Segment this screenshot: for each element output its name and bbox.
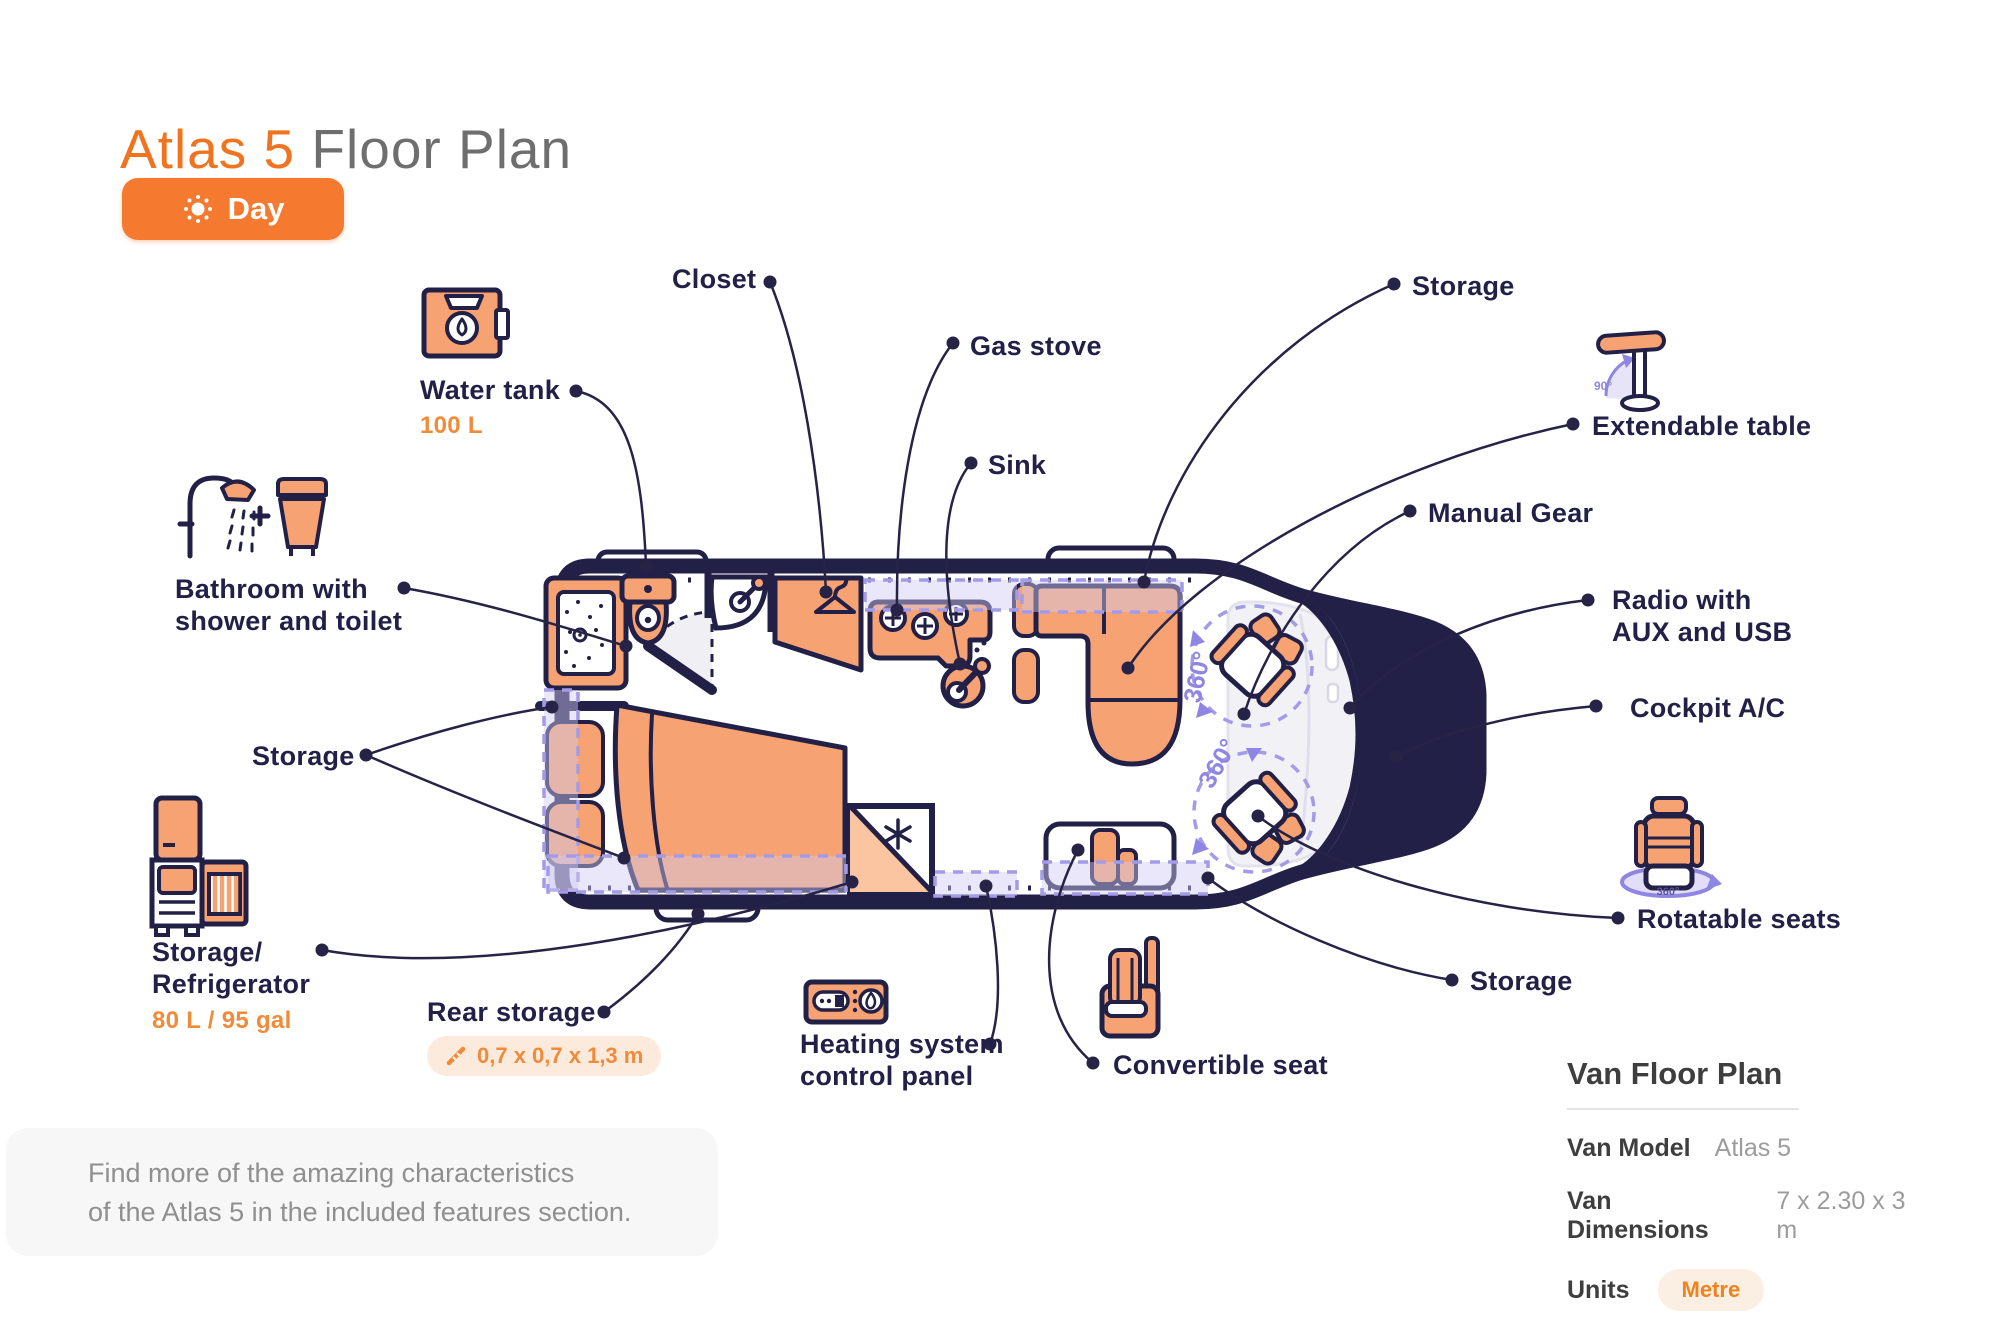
kitchen-sink bbox=[943, 666, 983, 706]
line-water-tank bbox=[576, 391, 646, 566]
features-note: Find more of the amazing characteristics… bbox=[6, 1128, 718, 1256]
callout-storage-left: Storage bbox=[252, 740, 355, 772]
shower-icon bbox=[180, 478, 254, 556]
line-sink bbox=[946, 463, 971, 664]
units-badge[interactable]: Metre bbox=[1658, 1269, 1765, 1311]
seat-shape bbox=[1208, 603, 1315, 709]
page-title: Atlas 5 Floor Plan bbox=[120, 117, 572, 181]
callout-sink: Sink bbox=[988, 449, 1046, 481]
convertible-seat-label: Convertible seat bbox=[1113, 1050, 1328, 1080]
callout-storage-right: Storage bbox=[1470, 965, 1573, 997]
fridge-diagonal bbox=[850, 806, 932, 892]
line-manual-gear bbox=[1244, 511, 1410, 714]
line-bathroom bbox=[404, 588, 626, 646]
rotation-circle bbox=[1194, 752, 1314, 872]
bench-frame bbox=[1046, 824, 1174, 888]
toilet-seat bbox=[637, 606, 659, 630]
van-dimensions-row: Van Dimensions 7 x 2.30 x 3 m bbox=[1567, 1187, 1927, 1245]
bed-mattress bbox=[615, 705, 845, 890]
fridge-area bbox=[850, 806, 932, 892]
overhead-storage bbox=[548, 856, 846, 892]
cockpit-ac-label: Cockpit A/C bbox=[1630, 693, 1785, 723]
line-radio bbox=[1350, 600, 1588, 708]
bench-cushion bbox=[1118, 850, 1136, 884]
closet-area bbox=[775, 578, 861, 670]
rotatable-seats-label: Rotatable seats bbox=[1637, 904, 1841, 934]
seat-360-label: 360° bbox=[1657, 886, 1680, 898]
sink-label: Sink bbox=[988, 450, 1046, 480]
counter-dot bbox=[982, 641, 987, 646]
day-mode-button[interactable]: Day bbox=[122, 178, 344, 240]
roof-window bbox=[1048, 548, 1174, 570]
overhead-storage-strips bbox=[544, 580, 1208, 896]
line-storage-right bbox=[1208, 878, 1452, 980]
counter-dot bbox=[975, 648, 980, 653]
heating-panel-icon bbox=[806, 982, 886, 1022]
a-pillar-top bbox=[1312, 600, 1360, 702]
rear-storage-label: Rear storage bbox=[427, 997, 596, 1027]
water-tank-label: Water tank bbox=[420, 375, 560, 405]
closet-panel bbox=[775, 578, 861, 670]
kitchen-faucet bbox=[959, 668, 980, 690]
line-heating bbox=[986, 886, 998, 1044]
van-dimensions-value: 7 x 2.30 x 3 m bbox=[1776, 1187, 1927, 1245]
table-angle-label: 90° bbox=[1594, 379, 1612, 393]
page-title-model: Atlas 5 bbox=[120, 118, 295, 180]
rotation-arrow bbox=[1190, 630, 1205, 647]
bathroom-door bbox=[648, 646, 712, 690]
refrigerator-capacity: 80 L / 95 gal bbox=[152, 1007, 310, 1036]
van-dimensions-label: Van Dimensions bbox=[1567, 1187, 1752, 1245]
rotatable-seat-front: 360° bbox=[1178, 603, 1314, 726]
atlas5-floorplan-page: 360° 360° bbox=[0, 0, 2000, 1334]
units-row: Units Metre bbox=[1567, 1269, 1927, 1311]
dinette-sofa bbox=[1014, 584, 1180, 764]
page-title-rest: Floor Plan bbox=[295, 118, 572, 180]
shower-floor bbox=[558, 592, 614, 674]
rotation-arrow bbox=[1192, 838, 1209, 855]
convertible-bench bbox=[1046, 824, 1174, 888]
line-storage-refrigerator bbox=[322, 882, 852, 958]
callout-radio: Radio with AUX and USB bbox=[1612, 584, 1792, 649]
van-model-value: Atlas 5 bbox=[1715, 1134, 1791, 1163]
sofa-seat bbox=[1036, 586, 1180, 764]
units-label: Units bbox=[1567, 1276, 1630, 1305]
plus-icon bbox=[252, 508, 268, 524]
manual-gear-label: Manual Gear bbox=[1428, 498, 1593, 528]
van-nose bbox=[1302, 596, 1479, 872]
ruler-icon bbox=[445, 1045, 467, 1067]
shower-drain-dot bbox=[578, 633, 582, 637]
van-info-panel: Van Floor Plan Van Model Atlas 5 Van Dim… bbox=[1567, 1056, 1927, 1311]
van-model-label: Van Model bbox=[1567, 1134, 1691, 1163]
toilet-tank bbox=[622, 576, 674, 602]
callout-extendable-table: Extendable table bbox=[1592, 410, 1811, 442]
day-mode-label: Day bbox=[228, 191, 285, 227]
snowflake-icon bbox=[886, 820, 910, 848]
kitchen-faucet-knob bbox=[975, 659, 989, 673]
refrigerator-icon bbox=[152, 798, 246, 935]
shower-drain bbox=[574, 629, 586, 641]
bathroom-faucet bbox=[740, 585, 757, 602]
line-rear-storage bbox=[604, 914, 698, 1012]
pillow bbox=[547, 802, 603, 866]
storage-refrigerator-line2: Refrigerator bbox=[152, 968, 310, 1000]
water-tank-capacity: 100 L bbox=[420, 412, 560, 441]
overhead-storage bbox=[1022, 580, 1182, 612]
line-cockpit-ac bbox=[1396, 706, 1596, 757]
van-floor-plan: 360° 360° bbox=[540, 548, 1479, 920]
info-panel-title: Van Floor Plan bbox=[1567, 1056, 1927, 1092]
rotation-arrow bbox=[1246, 748, 1262, 762]
rear-storage-dimensions: 0,7 x 0,7 x 1,3 m bbox=[477, 1043, 643, 1069]
van-model-row: Van Model Atlas 5 bbox=[1567, 1134, 1927, 1163]
callout-rear-storage: Rear storage bbox=[427, 996, 596, 1028]
callout-rotatable-seats: Rotatable seats bbox=[1637, 903, 1841, 935]
line-convertible-seat bbox=[1049, 850, 1093, 1063]
door-swing-arc bbox=[648, 612, 712, 690]
callout-water-tank: Water tank 100 L bbox=[420, 374, 560, 441]
rotatable-seat-icon: 360° bbox=[1622, 798, 1722, 898]
sofa-back-cushion bbox=[1014, 650, 1038, 702]
rotation-circle bbox=[1192, 606, 1312, 726]
water-tank-icon bbox=[424, 290, 508, 356]
a-pillar-bottom bbox=[1312, 766, 1360, 868]
fridge-door bbox=[850, 806, 932, 892]
storage-top-label: Storage bbox=[1412, 271, 1515, 301]
storage-right-label: Storage bbox=[1470, 966, 1573, 996]
bathroom-faucet-knob bbox=[753, 577, 765, 589]
bench-cushion bbox=[1092, 830, 1118, 884]
radio-label-line1: Radio with bbox=[1612, 584, 1792, 616]
note-line1: Find more of the amazing characteristics bbox=[88, 1154, 718, 1193]
line-extendable-table bbox=[1128, 424, 1573, 668]
callout-storage-refrigerator: Storage/ Refrigerator 80 L / 95 gal bbox=[152, 936, 310, 1036]
bathroom-area bbox=[540, 572, 771, 706]
line-gas-stove bbox=[897, 343, 953, 610]
callout-convertible-seat: Convertible seat bbox=[1113, 1049, 1328, 1081]
toilet-bowl bbox=[630, 602, 667, 643]
line-storage-left-b bbox=[366, 755, 624, 858]
gas-stove-label: Gas stove bbox=[970, 331, 1102, 361]
seat-shape bbox=[1210, 769, 1317, 875]
callout-gas-stove: Gas stove bbox=[970, 330, 1102, 362]
roof-vent bbox=[598, 552, 706, 570]
hanger-hook bbox=[835, 579, 846, 597]
sofa-back-cushion bbox=[1014, 584, 1038, 636]
rear-storage-dimensions-badge: 0,7 x 0,7 x 1,3 m bbox=[427, 1036, 661, 1076]
callout-heating-panel: Heating system control panel bbox=[800, 1028, 1004, 1093]
heating-label-line1: Heating system bbox=[800, 1028, 1004, 1060]
door-handle bbox=[1326, 636, 1338, 670]
kitchen-sink-basin bbox=[948, 683, 966, 701]
rotation-360-label: 360° bbox=[1178, 649, 1216, 705]
info-panel-divider bbox=[1567, 1108, 1799, 1110]
pillow bbox=[547, 722, 603, 796]
callout-closet: Closet bbox=[672, 263, 756, 295]
bed-area bbox=[547, 705, 845, 890]
gas-burners bbox=[881, 603, 967, 638]
line-storage-top bbox=[1144, 284, 1394, 582]
bathroom-sink bbox=[711, 577, 766, 628]
fridge-box bbox=[850, 806, 932, 892]
cockpit-dashboard bbox=[1228, 602, 1362, 866]
line-rotatable-seats bbox=[1258, 816, 1618, 918]
bathroom-label-line2: shower and toilet bbox=[175, 605, 402, 637]
extendable-table-icon: 90° bbox=[1594, 332, 1665, 410]
sun-icon bbox=[182, 193, 214, 225]
shower-tray bbox=[546, 578, 626, 688]
overhead-storage bbox=[544, 690, 578, 890]
rotatable-seat-rear: 360° bbox=[1192, 734, 1316, 875]
bathroom-label-line1: Bathroom with bbox=[175, 573, 402, 605]
door-seam bbox=[1300, 614, 1309, 854]
bathroom-sink-basin bbox=[731, 593, 749, 611]
van-outline bbox=[562, 566, 1479, 902]
note-line2: of the Atlas 5 in the included features … bbox=[88, 1193, 718, 1232]
hanger-icon bbox=[816, 597, 854, 612]
callout-bathroom: Bathroom with shower and toilet bbox=[175, 573, 402, 638]
kitchen-area bbox=[870, 602, 990, 706]
line-storage-left-a bbox=[366, 707, 552, 755]
rotation-arrow bbox=[1196, 702, 1213, 718]
heating-label-line2: control panel bbox=[800, 1060, 1004, 1092]
overhead-storage bbox=[865, 580, 1017, 610]
stove-counter bbox=[870, 602, 990, 666]
callout-storage-top: Storage bbox=[1412, 270, 1515, 302]
toilet-icon bbox=[278, 479, 326, 556]
toilet-drain bbox=[645, 617, 651, 623]
door-latch bbox=[1328, 684, 1338, 702]
shower-dots bbox=[564, 600, 604, 668]
line-closet bbox=[770, 282, 826, 592]
closet-label: Closet bbox=[672, 264, 756, 294]
overhead-storage bbox=[935, 872, 1017, 896]
storage-refrigerator-line1: Storage/ bbox=[152, 936, 310, 968]
toilet-button bbox=[644, 585, 652, 593]
overhead-storage bbox=[1042, 862, 1208, 894]
callout-manual-gear: Manual Gear bbox=[1428, 497, 1593, 529]
convertible-seat-icon bbox=[1102, 938, 1158, 1036]
storage-left-label: Storage bbox=[252, 741, 355, 771]
extendable-table-label: Extendable table bbox=[1592, 411, 1811, 441]
radio-label-line2: AUX and USB bbox=[1612, 616, 1792, 648]
rotation-360-label: 360° bbox=[1193, 734, 1243, 793]
callout-cockpit-ac: Cockpit A/C bbox=[1630, 692, 1785, 724]
entry-step bbox=[656, 890, 758, 920]
mattress-seam bbox=[651, 714, 667, 888]
